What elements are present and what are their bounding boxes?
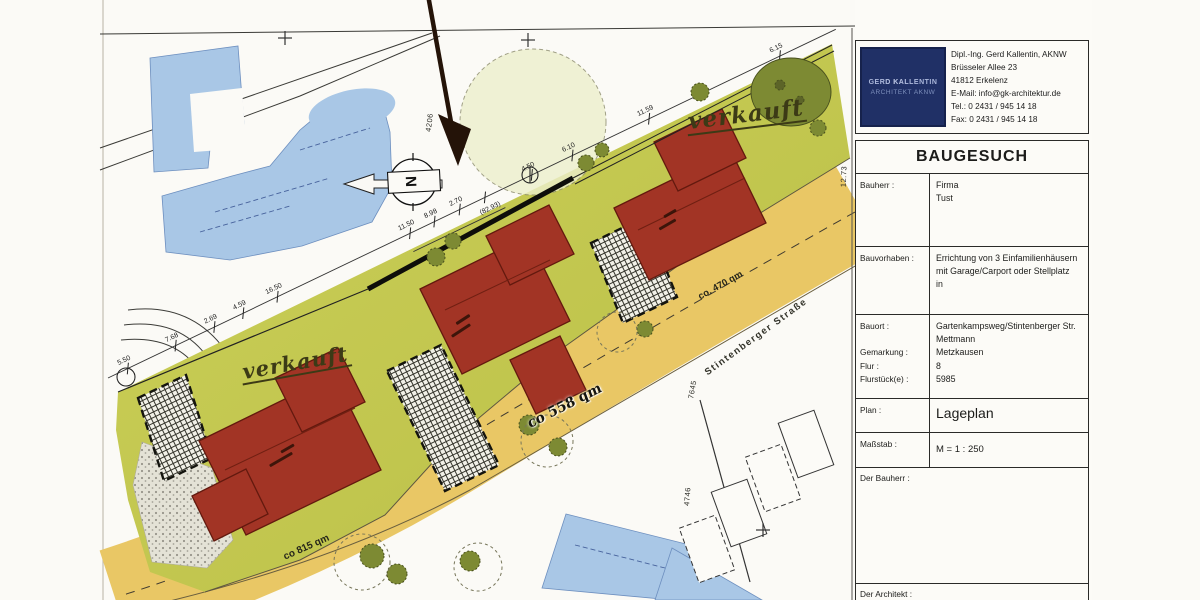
row-der-bauherr: Der Bauherr : <box>856 467 1088 583</box>
architect-address: Dipl.-Ing. Gerd Kallentin, AKNW Brüssele… <box>951 48 1067 126</box>
tree-crown-large <box>460 49 606 195</box>
bauherr-label: Bauherr : <box>856 174 930 246</box>
plan-label: Plan : <box>856 399 930 432</box>
row-der-architekt: Der Architekt : <box>856 583 1088 600</box>
site-plan-drawing: 5.507.682.694.5916.5011.508.982.70(82.93… <box>0 0 860 600</box>
row-bauvorhaben: Bauvorhaben : Errichtung von 3 Einfamili… <box>856 246 1088 314</box>
bauvorhaben-label: Bauvorhaben : <box>856 247 930 314</box>
baugesuch-heading: BAUGESUCH <box>856 141 1088 173</box>
row-plan: Plan : Lageplan <box>856 398 1088 432</box>
bauvorhaben-value: Errichtung von 3 Einfamilienhäusern mit … <box>930 247 1088 314</box>
scanned-site-plan-page: 5.507.682.694.5916.5011.508.982.70(82.93… <box>0 0 1200 600</box>
architect-box: GERD KALLENTIN ARCHITEKT AKNW Dipl.-Ing.… <box>855 40 1089 134</box>
row-bauherr: Bauherr : Firma Tust <box>856 173 1088 246</box>
massstab-value: M = 1 : 250 <box>930 433 1088 467</box>
row-bauort: Bauort : Gemarkung : Flur : Flurstück(e)… <box>856 314 1088 398</box>
plan-value: Lageplan <box>930 399 1088 432</box>
bauort-labels: Bauort : Gemarkung : Flur : Flurstück(e)… <box>856 315 930 398</box>
title-block-table: BAUGESUCH Bauherr : Firma Tust Bauvorhab… <box>855 140 1089 600</box>
svg-text:N: N <box>402 176 419 187</box>
row-massstab: Maßstab : M = 1 : 250 <box>856 432 1088 467</box>
architect-logo: GERD KALLENTIN ARCHITEKT AKNW <box>860 47 946 127</box>
bauherr-value: Firma Tust <box>930 174 1088 246</box>
logo-line2: ARCHITEKT AKNW <box>871 89 936 96</box>
massstab-label: Maßstab : <box>856 433 930 467</box>
logo-line1: GERD KALLENTIN <box>869 79 938 86</box>
title-block: GERD KALLENTIN ARCHITEKT AKNW Dipl.-Ing.… <box>855 0 1092 600</box>
bauort-values: Gartenkampsweg/Stintenberger Str. Mettma… <box>930 315 1088 398</box>
